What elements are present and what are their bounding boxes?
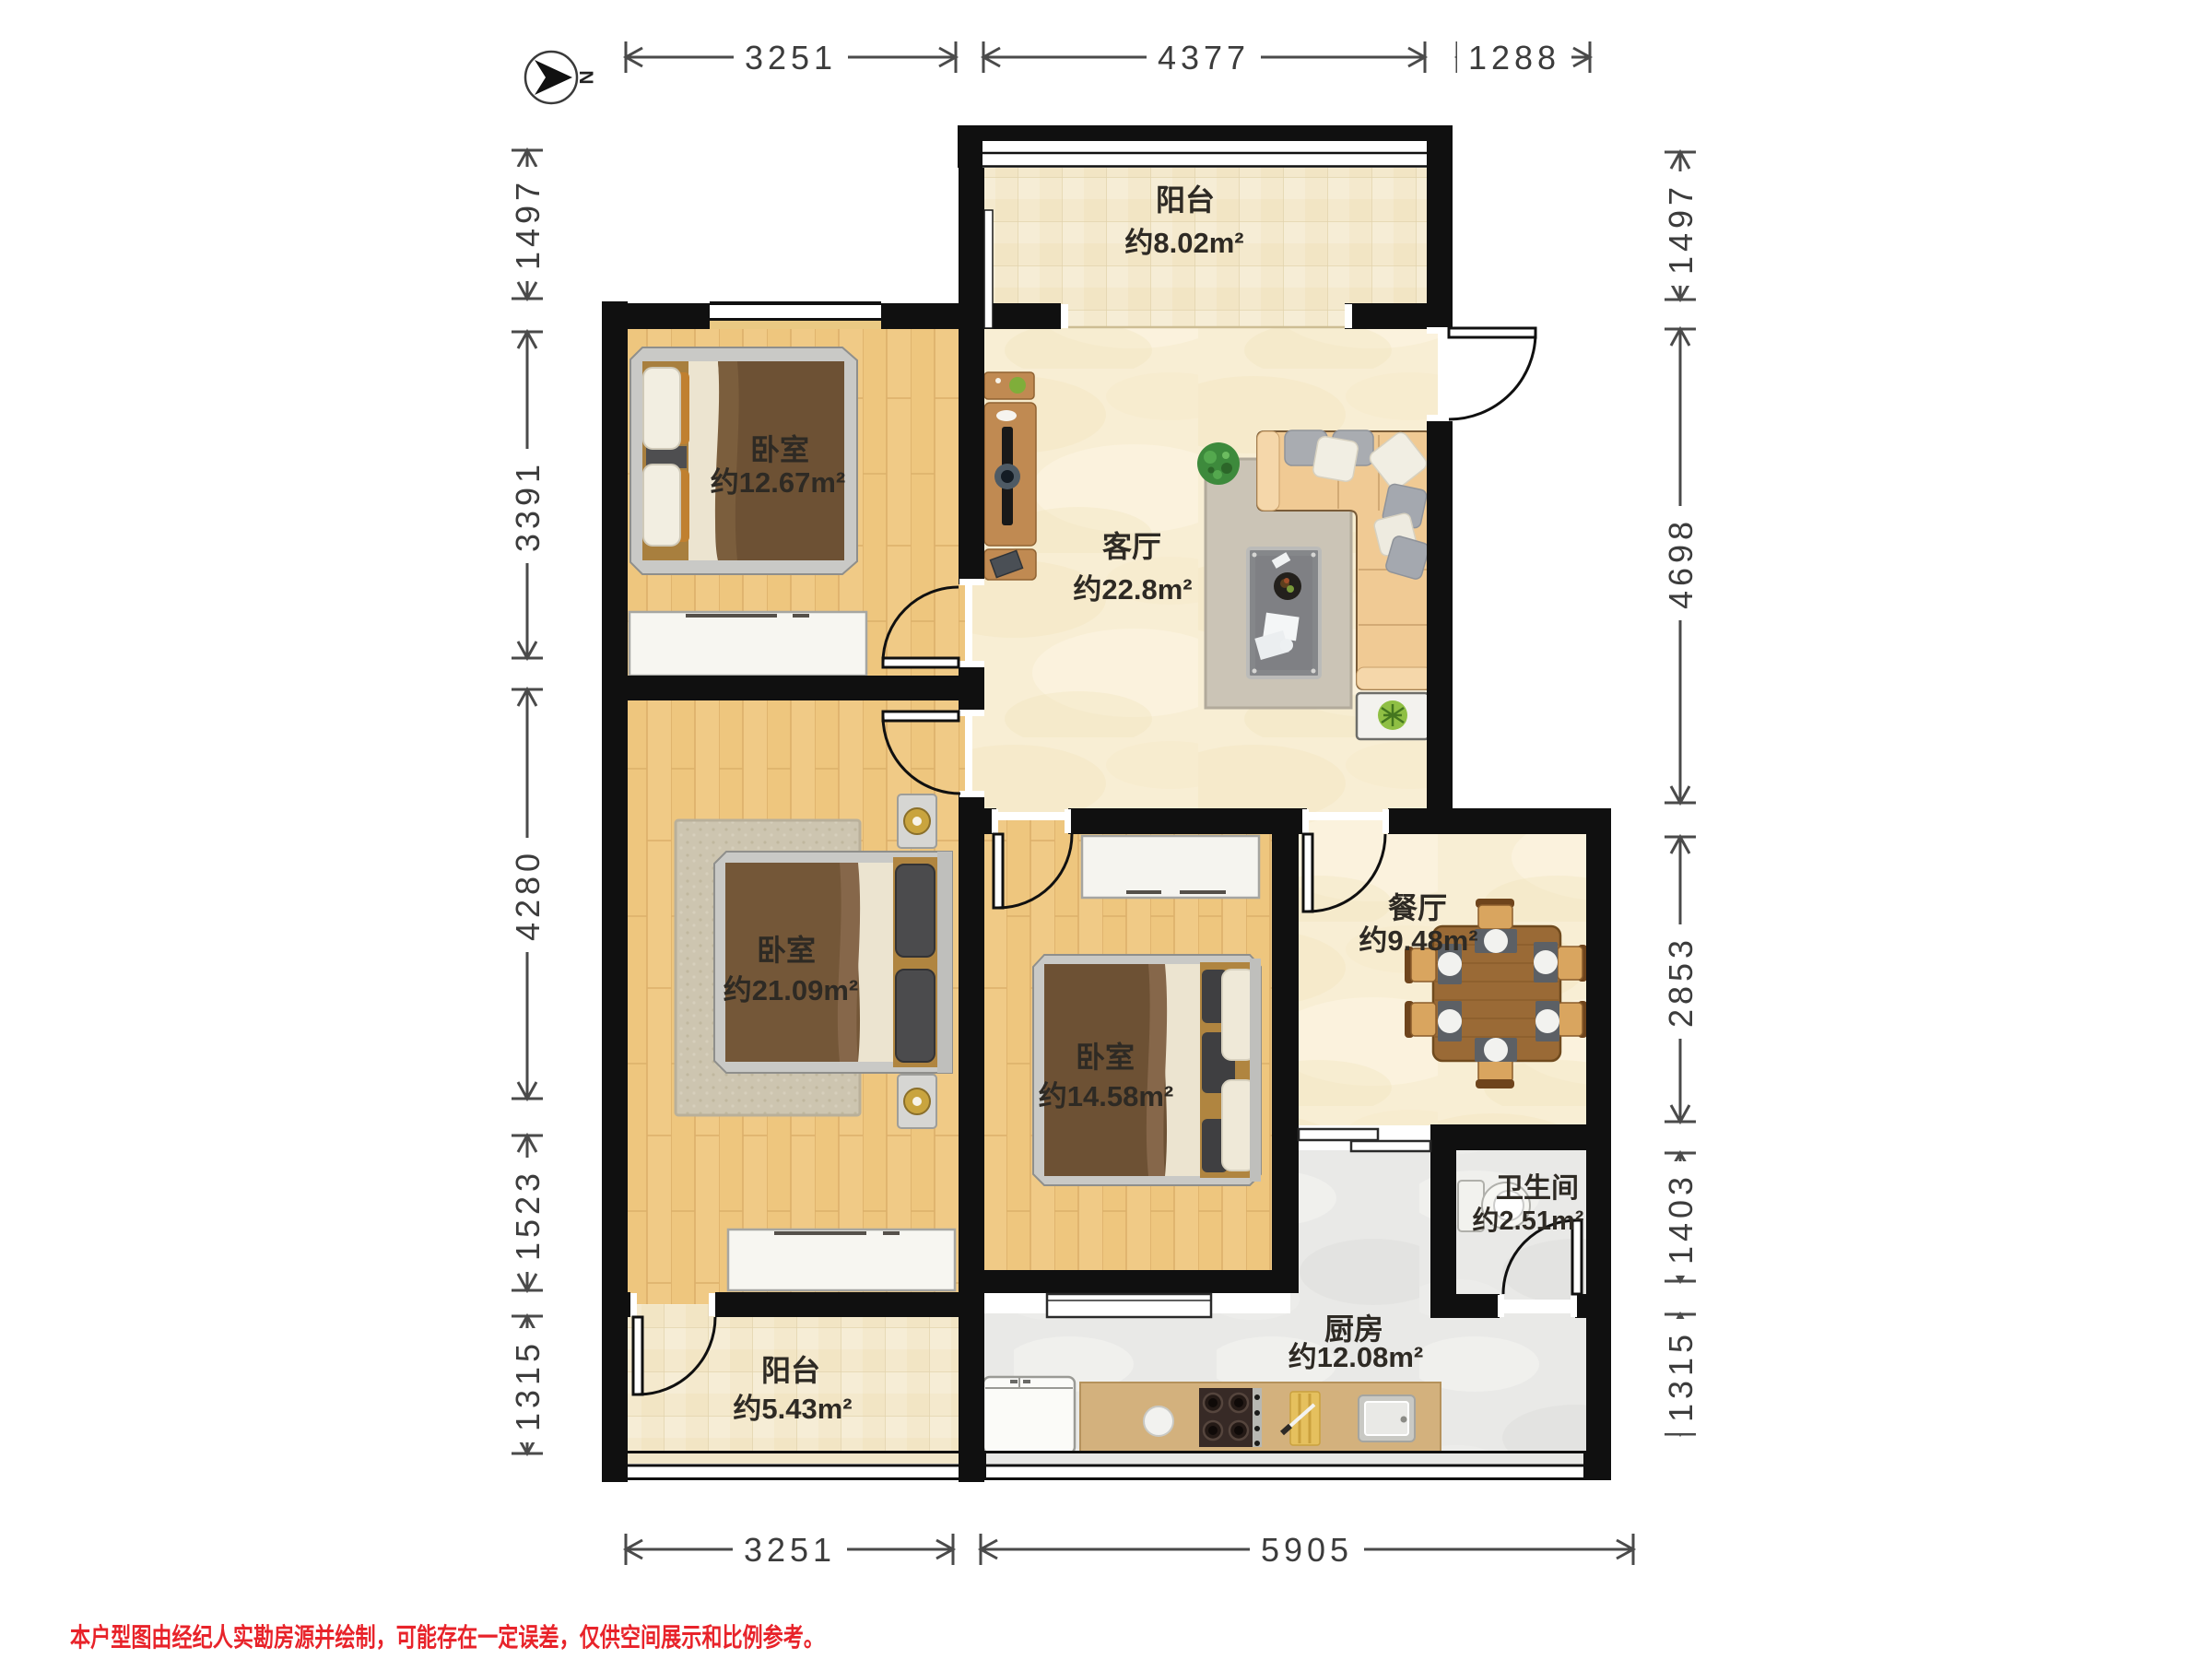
svg-text:卧室: 卧室 xyxy=(1076,1041,1135,1074)
svg-text:1497: 1497 xyxy=(1662,182,1700,275)
svg-text:卧室: 卧室 xyxy=(750,433,809,466)
svg-text:1523: 1523 xyxy=(509,1169,547,1261)
svg-text:N: N xyxy=(575,70,596,84)
svg-text:约12.08m²: 约12.08m² xyxy=(1288,1341,1423,1373)
svg-text:约14.58m²: 约14.58m² xyxy=(1039,1080,1173,1112)
svg-text:3251: 3251 xyxy=(745,39,837,76)
svg-text:约2.51m²: 约2.51m² xyxy=(1473,1206,1584,1236)
svg-text:本户型图由经纪人实勘房源并绘制，可能存在一定误差，仅供空间展: 本户型图由经纪人实勘房源并绘制，可能存在一定误差，仅供空间展示和比例参考。 xyxy=(70,1622,824,1652)
svg-text:3251: 3251 xyxy=(744,1531,836,1569)
svg-text:约9.48m²: 约9.48m² xyxy=(1359,924,1477,957)
svg-text:餐厅: 餐厅 xyxy=(1388,891,1447,924)
svg-text:2853: 2853 xyxy=(1662,935,1700,1028)
svg-text:1403: 1403 xyxy=(1662,1172,1700,1265)
svg-text:5905: 5905 xyxy=(1261,1531,1353,1569)
svg-text:约5.43m²: 约5.43m² xyxy=(733,1393,852,1425)
svg-text:1288: 1288 xyxy=(1468,39,1560,76)
svg-text:3391: 3391 xyxy=(509,460,547,552)
svg-text:卫生间: 卫生间 xyxy=(1496,1173,1579,1204)
svg-text:阳台: 阳台 xyxy=(761,1354,820,1387)
svg-text:约22.8m²: 约22.8m² xyxy=(1073,573,1192,606)
svg-text:卧室: 卧室 xyxy=(757,934,816,967)
svg-text:约8.02m²: 约8.02m² xyxy=(1124,227,1243,259)
svg-text:4280: 4280 xyxy=(509,849,547,941)
svg-text:约12.67m²: 约12.67m² xyxy=(711,466,845,499)
svg-text:4698: 4698 xyxy=(1662,517,1700,609)
svg-text:阳台: 阳台 xyxy=(1156,183,1215,217)
svg-text:客厅: 客厅 xyxy=(1102,530,1161,563)
svg-text:4377: 4377 xyxy=(1158,39,1250,76)
svg-text:1315: 1315 xyxy=(509,1339,547,1431)
svg-text:1315: 1315 xyxy=(1662,1330,1700,1422)
svg-text:约21.09m²: 约21.09m² xyxy=(724,974,858,1006)
svg-text:1497: 1497 xyxy=(509,178,547,270)
